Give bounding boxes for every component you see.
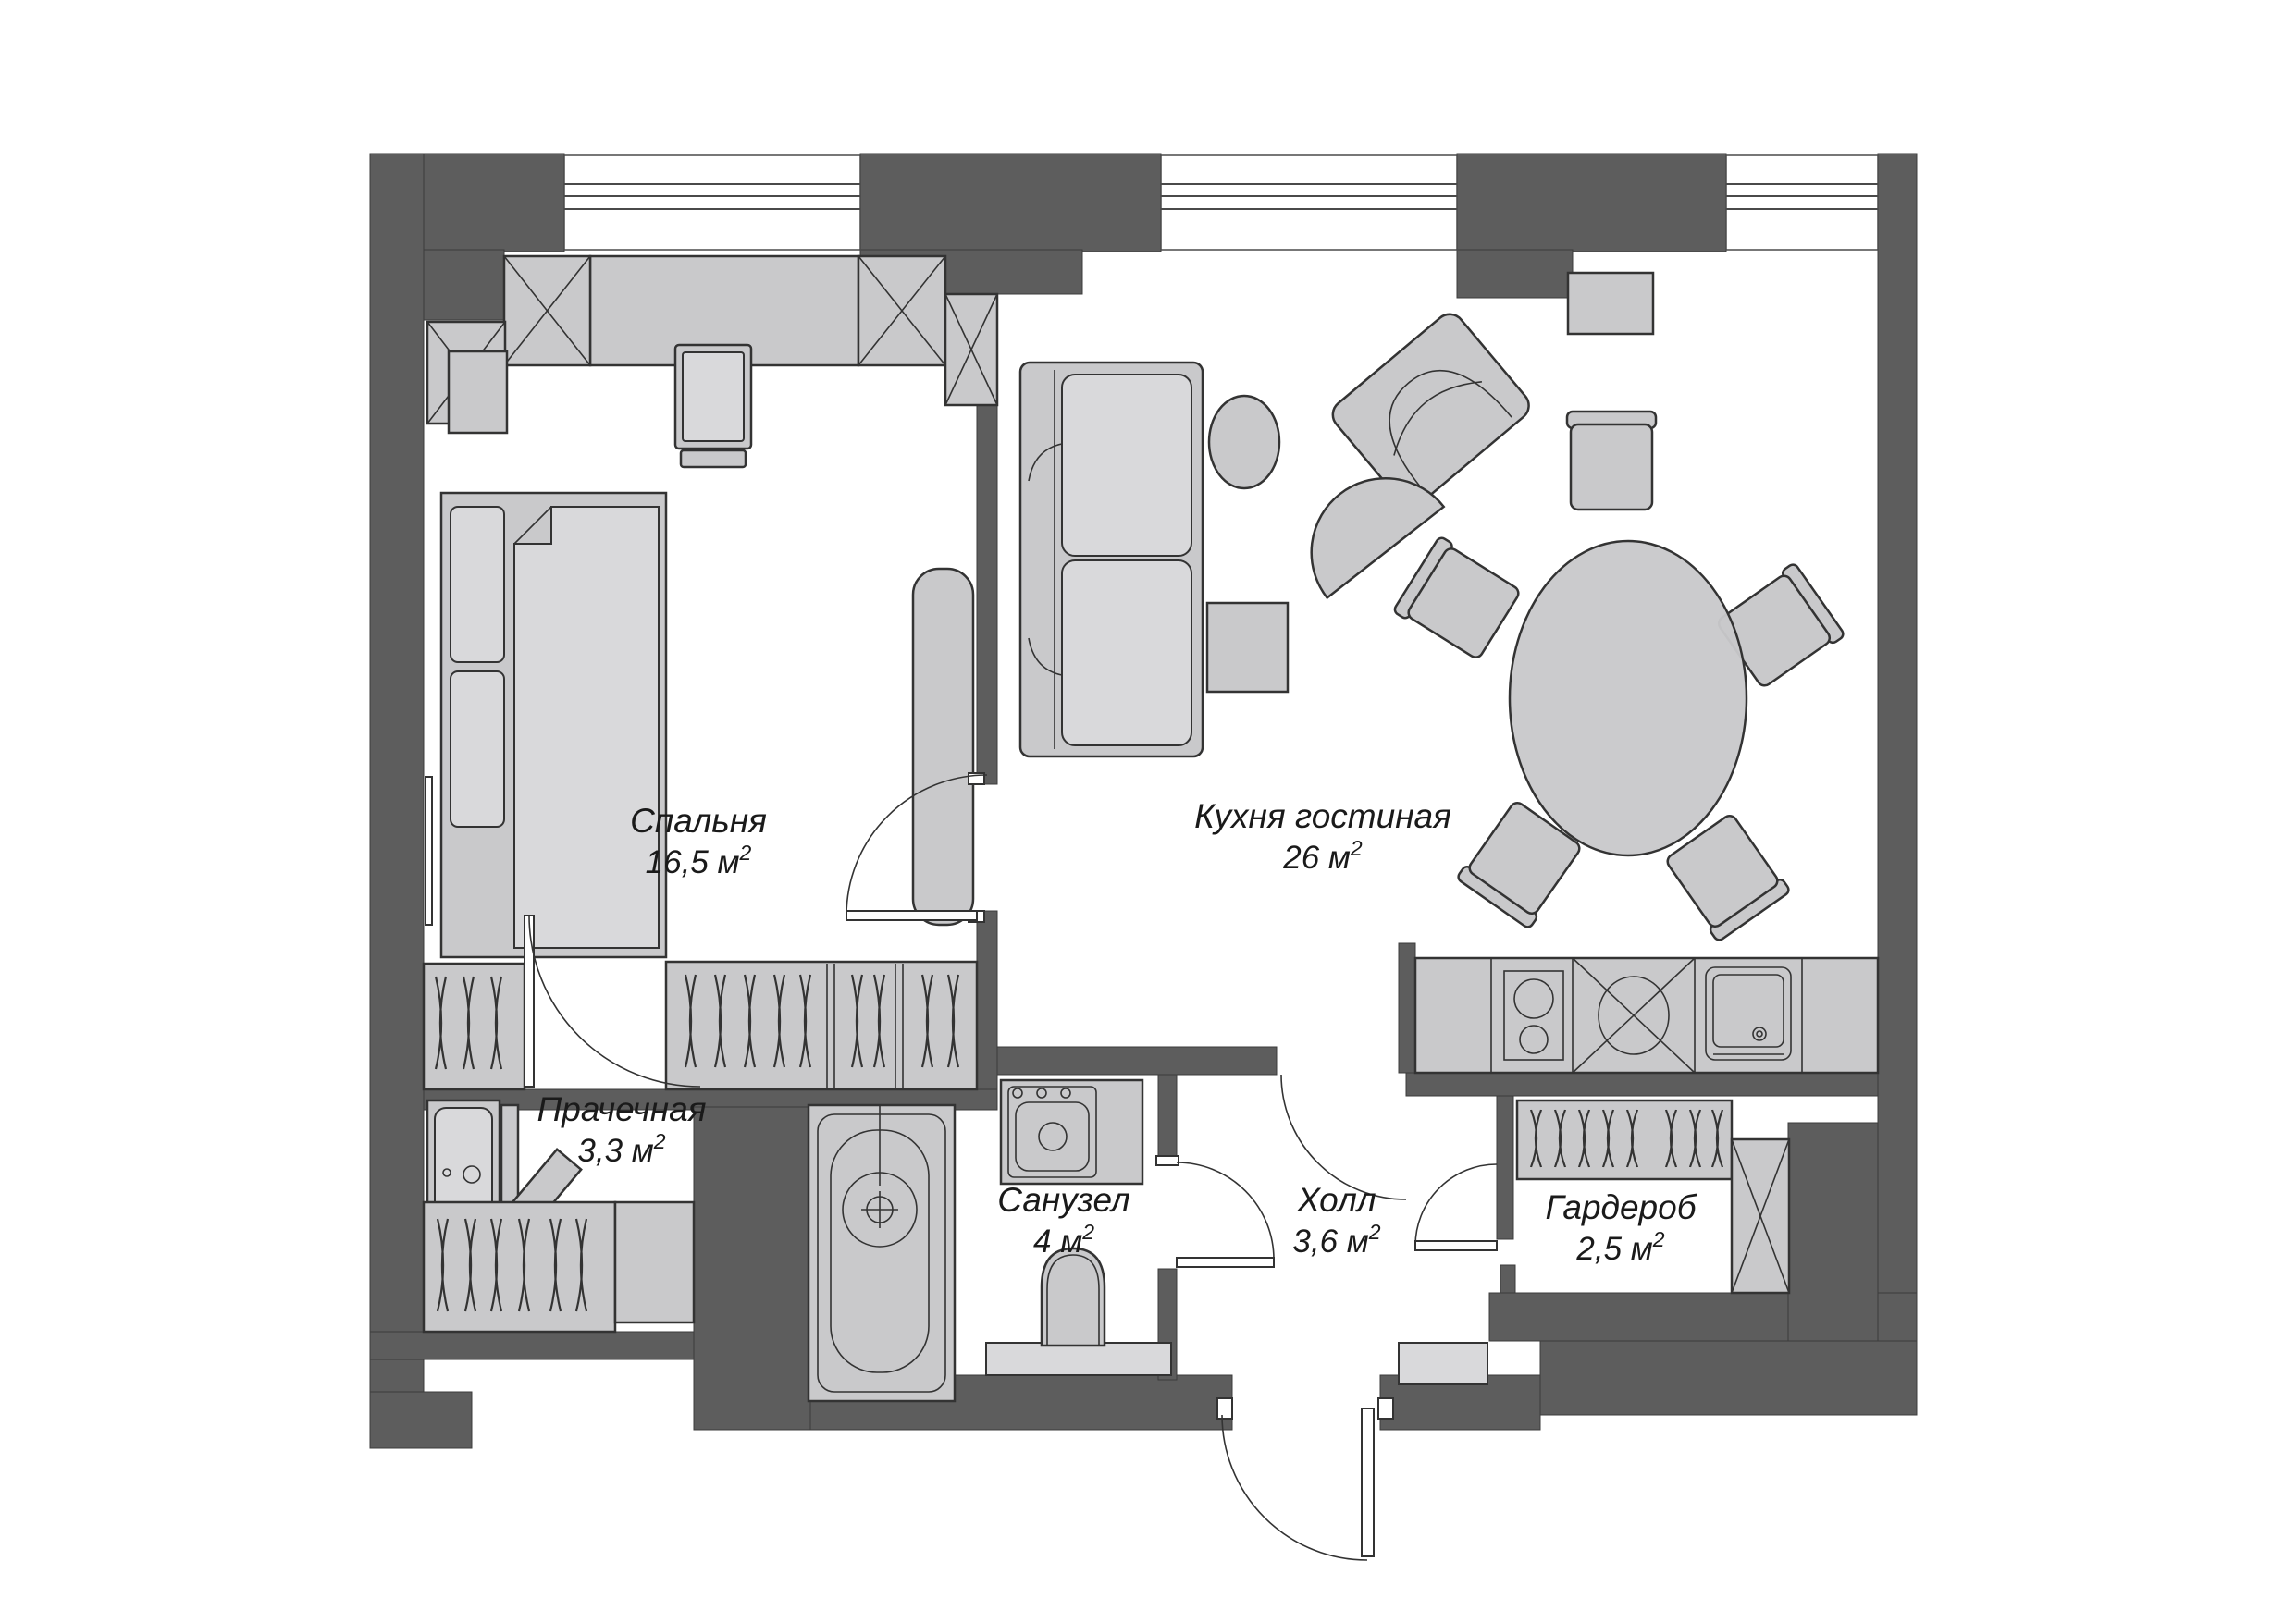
bathroom-door xyxy=(1156,1156,1274,1267)
mirror xyxy=(426,777,432,925)
svg-text:Кухня гостиная: Кухня гостиная xyxy=(1194,797,1451,835)
bathroom-door-leaf xyxy=(1177,1258,1274,1267)
svg-text:3,3 м2: 3,3 м2 xyxy=(577,1129,665,1169)
bed xyxy=(441,493,666,957)
entrance-door xyxy=(1217,1398,1393,1560)
window-bedroom xyxy=(564,155,860,250)
dining-group xyxy=(1393,412,1845,942)
entrance-door-swing xyxy=(1222,1415,1367,1560)
side-table xyxy=(1209,396,1279,488)
wall-partition-bottom xyxy=(977,911,997,1110)
coffee-table xyxy=(1207,603,1288,692)
window-kitchen xyxy=(1726,155,1878,250)
entrance-door-leaf xyxy=(1362,1408,1374,1556)
svg-text:26 м2: 26 м2 xyxy=(1282,836,1363,876)
svg-text:Гардероб: Гардероб xyxy=(1545,1188,1697,1226)
bathroom-sink xyxy=(1001,1080,1142,1184)
bathtub xyxy=(809,1105,955,1401)
label-wardrobe: Гардероб 2,5 м2 xyxy=(1545,1188,1697,1267)
wall-bottom-right-block xyxy=(1540,1341,1917,1415)
wall-shaft-block xyxy=(694,1107,810,1430)
wardrobe-x-box-left xyxy=(504,256,590,365)
svg-text:16,5 м2: 16,5 м2 xyxy=(646,841,752,880)
wall-wardrobe-right-block xyxy=(1788,1123,1878,1341)
wall-hall-stub xyxy=(1497,1096,1513,1239)
svg-text:Холл: Холл xyxy=(1296,1181,1376,1219)
window-living xyxy=(1161,155,1457,250)
wall-right xyxy=(1878,154,1917,1341)
wall-laundry-bottom xyxy=(370,1332,694,1359)
pillow xyxy=(451,671,504,827)
wardrobe-closet-row xyxy=(1517,1100,1732,1179)
svg-text:Санузел: Санузел xyxy=(997,1181,1130,1219)
floor-plan: Спальня 16,5 м2 Кухня гостиная 26 м2 Пра… xyxy=(0,0,2296,1623)
floor-plan-drawing: Спальня 16,5 м2 Кухня гостиная 26 м2 Пра… xyxy=(0,0,2296,1623)
dining-chair xyxy=(1393,535,1524,663)
svg-text:2,5 м2: 2,5 м2 xyxy=(1575,1227,1664,1267)
wall-bath-right-top xyxy=(1158,1075,1177,1162)
wardrobe-door xyxy=(1415,1164,1497,1250)
bedroom-closet-main xyxy=(666,962,977,1089)
dining-table xyxy=(1510,541,1747,855)
wall-kitchen-pier xyxy=(1399,943,1415,1073)
pillow xyxy=(451,507,504,662)
wardrobe-x-cabinet xyxy=(1732,1139,1789,1293)
svg-text:3,6 м2: 3,6 м2 xyxy=(1292,1220,1380,1260)
laundry-lower-cabinet xyxy=(615,1202,694,1322)
armoire xyxy=(913,569,973,925)
label-hall: Холл 3,6 м2 xyxy=(1292,1181,1380,1260)
blanket xyxy=(514,507,659,948)
wall-left xyxy=(370,154,424,1448)
wall-notch-right xyxy=(1457,250,1573,298)
armchair xyxy=(1327,308,1535,511)
svg-text:Спальня: Спальня xyxy=(630,802,767,840)
bathroom-door-swing xyxy=(1177,1162,1274,1260)
wardrobe-x-box-corner xyxy=(945,294,997,405)
wall-top-pier-1 xyxy=(860,154,1161,252)
bedroom-door-leaf xyxy=(846,911,977,920)
nightstand xyxy=(449,351,507,433)
wardrobe-door-leaf xyxy=(1415,1241,1497,1250)
wall-shelf xyxy=(1568,273,1653,334)
kitchen-counter xyxy=(1415,958,1878,1073)
label-kitchen-living: Кухня гостиная 26 м2 xyxy=(1194,797,1451,876)
toilet-platform xyxy=(986,1343,1171,1375)
wardrobe-door-swing xyxy=(1415,1164,1497,1246)
wall-left-foot xyxy=(370,1392,472,1448)
label-bathroom: Санузел 4 м2 xyxy=(997,1181,1130,1260)
bedroom-closet-left xyxy=(424,964,525,1089)
laundry-closet xyxy=(424,1202,615,1332)
bedroom xyxy=(424,256,997,1089)
doormat xyxy=(1399,1343,1487,1384)
tv-unit xyxy=(675,345,751,467)
wall-under-counter xyxy=(1406,1073,1878,1096)
dining-chair xyxy=(1567,412,1656,510)
toilet xyxy=(986,1248,1171,1375)
svg-text:Прачечная: Прачечная xyxy=(537,1090,707,1128)
sofa xyxy=(1020,363,1203,756)
wall-top-pier-2 xyxy=(1457,154,1726,252)
wall-above-bathroom xyxy=(997,1047,1277,1075)
laundry-door-leaf xyxy=(525,916,534,1087)
wardrobe-x-box-right xyxy=(858,256,945,365)
